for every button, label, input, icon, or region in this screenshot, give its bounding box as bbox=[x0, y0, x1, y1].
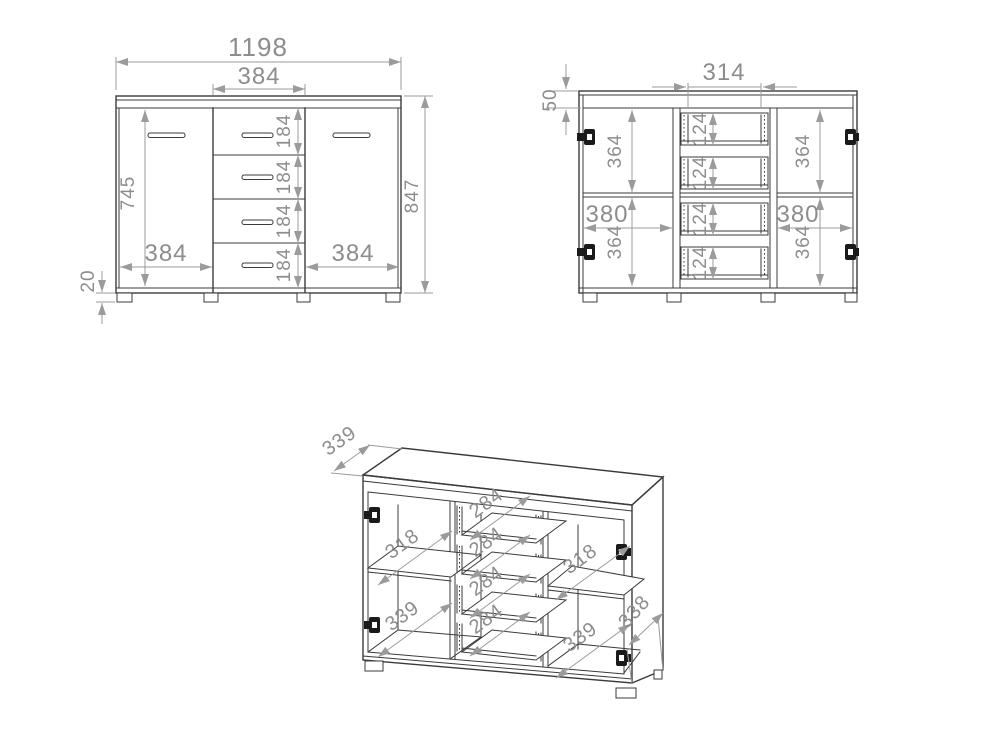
dim-right-compartment-width: 380 bbox=[776, 201, 819, 228]
dim-drawer-height-2: 184 bbox=[274, 160, 295, 195]
drawer-handle-4 bbox=[242, 263, 273, 268]
drawer-handle-2 bbox=[242, 175, 273, 180]
dim-plinth-height: 20 bbox=[78, 269, 99, 292]
iso-feet bbox=[365, 661, 662, 698]
dim-drawer-col-width: 384 bbox=[237, 63, 280, 90]
dim-bottom-right-depth: 339 bbox=[559, 618, 601, 657]
dim-drawer-box-height-1: 124 bbox=[690, 112, 711, 147]
dim-drawer-box-height-2: 124 bbox=[690, 156, 711, 191]
internal-feet bbox=[583, 293, 857, 302]
dim-left-door-width: 384 bbox=[144, 240, 187, 267]
dim-drawer-height-4: 184 bbox=[274, 248, 295, 283]
dim-drawer-height-1: 184 bbox=[274, 114, 295, 149]
dim-lower-right-height: 364 bbox=[793, 225, 814, 260]
dim-overall-height: 847 bbox=[402, 179, 423, 214]
left-door-handle bbox=[148, 133, 185, 138]
dim-upper-right-height: 364 bbox=[793, 134, 814, 169]
dim-drawer-height-3: 184 bbox=[274, 204, 295, 239]
furniture-dimension-drawing: 1198 384 184 184 184 184 745 847 384 384 bbox=[0, 0, 989, 741]
dim-bottom-left-depth: 339 bbox=[381, 597, 423, 636]
hinge-icon bbox=[364, 507, 380, 523]
dim-drawer-box-height-4: 124 bbox=[690, 246, 711, 281]
dim-drawer-box-height-3: 124 bbox=[690, 202, 711, 237]
dim-left-compartment-width: 380 bbox=[585, 201, 628, 228]
drawer-handle-3 bbox=[242, 220, 273, 225]
front-feet bbox=[117, 293, 400, 302]
iso-right-column bbox=[548, 525, 644, 673]
hinge-icon bbox=[577, 244, 595, 260]
dim-lower-left-height: 364 bbox=[605, 225, 626, 260]
internal-view: 314 50 364 364 364 364 380 380 124 124 1… bbox=[540, 59, 859, 302]
dim-top-clearance: 50 bbox=[540, 88, 561, 111]
cabinet-outline-internal bbox=[579, 91, 857, 293]
front-view: 1198 384 184 184 184 184 745 847 384 384 bbox=[78, 32, 433, 324]
hinge-icon bbox=[364, 617, 380, 633]
dim-upper-left-height: 364 bbox=[605, 134, 626, 169]
dim-drawer-opening-width: 314 bbox=[702, 59, 745, 86]
drawer-handle-1 bbox=[242, 133, 273, 138]
dim-top-depth: 339 bbox=[318, 422, 360, 461]
drawing-page: 1198 384 184 184 184 184 745 847 384 384 bbox=[0, 0, 989, 741]
iso-left-column bbox=[368, 505, 481, 659]
isometric-view: 339 318 339 318 339 284 284 284 284 338 bbox=[318, 422, 663, 698]
right-door-handle bbox=[333, 133, 370, 138]
hinge-icon bbox=[577, 129, 595, 145]
dim-door-height: 745 bbox=[118, 176, 139, 211]
dim-overall-width: 1198 bbox=[228, 32, 288, 62]
dim-right-door-width: 384 bbox=[331, 240, 374, 267]
